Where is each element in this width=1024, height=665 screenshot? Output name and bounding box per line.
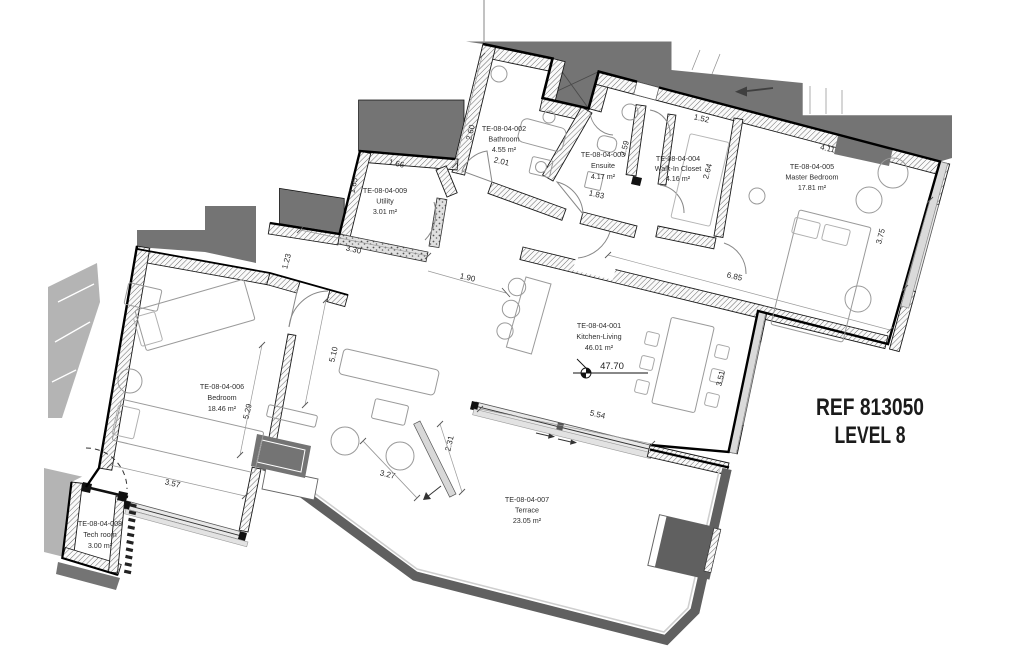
svg-text:REF 813050: REF 813050 xyxy=(816,394,924,421)
svg-text:LEVEL 8: LEVEL 8 xyxy=(835,422,906,449)
svg-text:TE-08-04-009: TE-08-04-009 xyxy=(363,186,407,195)
svg-text:Ensuite: Ensuite xyxy=(591,161,615,170)
svg-text:Tech room: Tech room xyxy=(83,530,117,539)
svg-text:TE-08-04-005: TE-08-04-005 xyxy=(790,162,834,171)
svg-text:TE-08-04-007: TE-08-04-007 xyxy=(505,495,549,504)
svg-text:Terrace: Terrace xyxy=(515,506,539,515)
svg-text:Walk-In Closet: Walk-In Closet xyxy=(655,164,701,173)
svg-text:17.81 m²: 17.81 m² xyxy=(798,183,827,192)
svg-text:Utility: Utility xyxy=(376,197,394,206)
svg-text:TE-08-04-003: TE-08-04-003 xyxy=(581,150,625,159)
svg-text:TE-08-04-001: TE-08-04-001 xyxy=(577,321,621,330)
svg-text:TE-08-04-008: TE-08-04-008 xyxy=(78,519,122,528)
svg-text:23.05 m²: 23.05 m² xyxy=(513,516,542,525)
svg-text:Kitchen-Living: Kitchen-Living xyxy=(576,332,621,341)
svg-text:TE-08-04-006: TE-08-04-006 xyxy=(200,382,244,391)
svg-text:18.46 m²: 18.46 m² xyxy=(208,404,237,413)
svg-text:4.16 m²: 4.16 m² xyxy=(666,174,691,183)
svg-text:46.01 m²: 46.01 m² xyxy=(585,343,614,352)
svg-text:Bathroom: Bathroom xyxy=(488,135,519,144)
svg-text:47.70: 47.70 xyxy=(600,361,624,372)
svg-text:Bedroom: Bedroom xyxy=(207,393,236,402)
svg-text:3.00 m²: 3.00 m² xyxy=(88,541,113,550)
svg-text:4.55 m²: 4.55 m² xyxy=(492,145,517,154)
svg-text:Master Bedroom: Master Bedroom xyxy=(785,173,838,182)
svg-text:3.01 m²: 3.01 m² xyxy=(373,207,398,216)
svg-text:TE-08-04-002: TE-08-04-002 xyxy=(482,124,526,133)
svg-text:TE-08-04-004: TE-08-04-004 xyxy=(656,154,700,163)
svg-text:4.17 m²: 4.17 m² xyxy=(591,172,616,181)
